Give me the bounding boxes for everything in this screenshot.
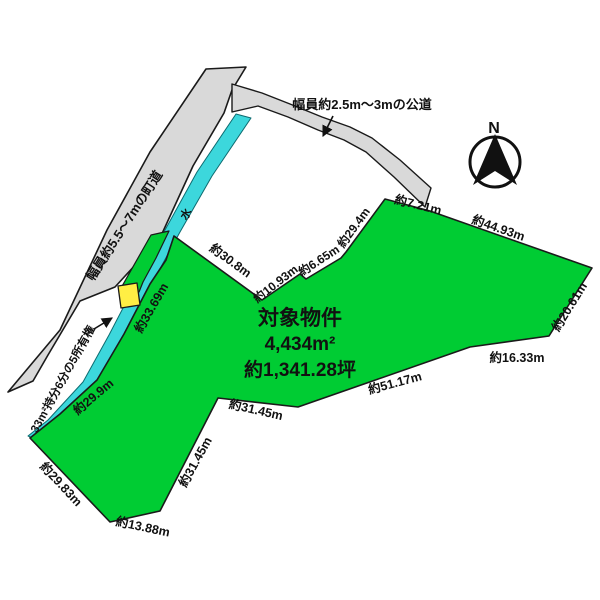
land-plot-diagram: N 幅員約2.5m〜3mの公道 幅員約5.5〜7mの町道 水 33m²持分6分の…: [0, 0, 600, 600]
property-area-sqm: 4,434m²: [265, 334, 336, 355]
property-area-tsubo: 約1,341.28坪: [244, 358, 356, 381]
compass-north-label: N: [488, 120, 500, 137]
dim-lower-right-edge: 約16.33m: [490, 350, 545, 365]
ownership-arrow: [94, 318, 112, 329]
public-road-label: 幅員約2.5m〜3mの公道: [292, 97, 431, 112]
property-name: 対象物件: [258, 306, 342, 330]
compass-icon: N: [470, 120, 520, 187]
dim-bottom-edge: 約13.88m: [115, 514, 172, 540]
plot-map-canvas: N 幅員約2.5m〜3mの公道 幅員約5.5〜7mの町道 水 33m²持分6分の…: [0, 0, 600, 600]
shared-ownership-parcel-shape: [118, 283, 140, 308]
